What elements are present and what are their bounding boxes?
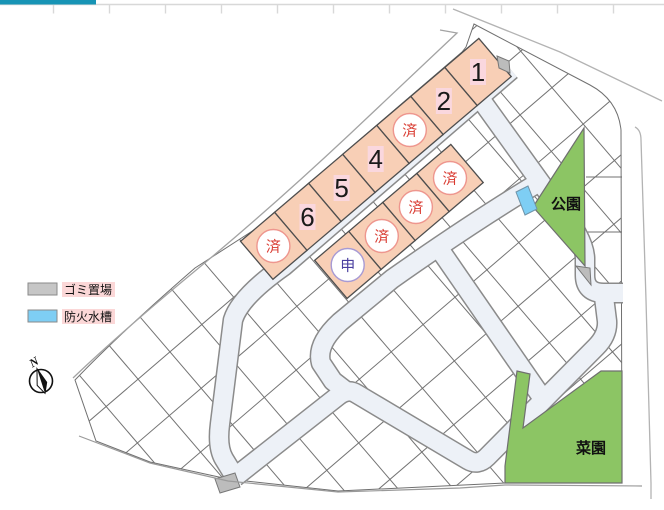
compass: N — [26, 353, 53, 395]
trash-label: ゴミ置場 — [64, 282, 112, 297]
compass-n-label: N — [26, 353, 43, 371]
park-label: 公園 — [551, 196, 581, 213]
teal-accent-bar — [0, 0, 96, 5]
subdivision-map: 12済456済済済済申 公園 菜園 ゴミ置場 防火水槽 N — [0, 0, 664, 510]
lot-number-label: 4 — [368, 144, 382, 174]
lot-number-label: 6 — [300, 202, 314, 232]
lot-status-label: 済 — [408, 200, 423, 217]
lot-status-label: 申 — [340, 258, 355, 275]
top-grid-artifacts — [0, 0, 664, 14]
lot-status-label: 済 — [266, 239, 281, 256]
fire-tank-swatch — [28, 310, 57, 322]
lot-number-label: 2 — [437, 86, 451, 116]
lot-status-label: 済 — [402, 123, 417, 140]
site-plan-page: 12済456済済済済申 公園 菜園 ゴミ置場 防火水槽 N — [0, 0, 664, 510]
trash-swatch — [28, 283, 57, 295]
legend: ゴミ置場 防火水槽 — [28, 282, 115, 324]
garden-label: 菜園 — [575, 439, 606, 457]
fire-tank-label: 防火水槽 — [64, 309, 112, 324]
lot-number-label: 5 — [334, 173, 348, 203]
lot-number-label: 1 — [471, 57, 485, 87]
lot-status-label: 済 — [374, 229, 389, 246]
lot-status-label: 済 — [442, 171, 457, 188]
